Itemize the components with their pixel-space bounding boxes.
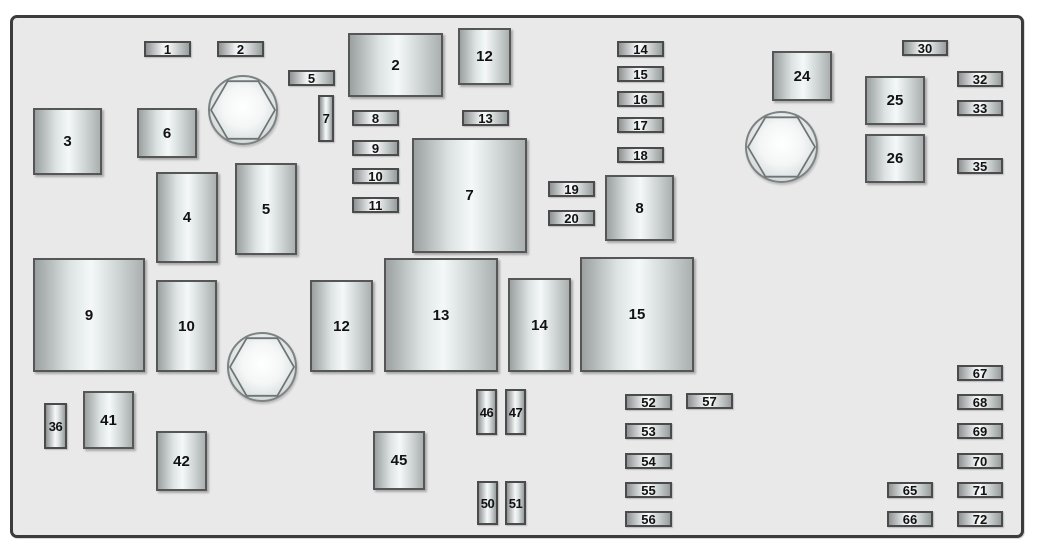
box-8-large: 8 — [605, 175, 674, 241]
fuse-7: 7 — [318, 95, 334, 142]
box-45: 45 — [373, 431, 425, 490]
fuse-68: 68 — [957, 394, 1003, 410]
box-6: 6 — [137, 108, 197, 158]
fuse-20: 20 — [548, 210, 595, 226]
hex-bolt-icon-top-left — [208, 75, 278, 145]
fuse-17: 17 — [617, 117, 664, 133]
box-10: 10 — [156, 280, 217, 372]
relay-24: 24 — [772, 51, 832, 101]
fuse-53: 53 — [625, 423, 672, 439]
fuse-13: 13 — [462, 110, 509, 126]
fuse-70: 70 — [957, 453, 1003, 469]
fuse-66: 66 — [887, 511, 933, 527]
fuse-14: 14 — [617, 41, 664, 57]
fuse-16: 16 — [617, 91, 664, 107]
fuse-19: 19 — [548, 181, 595, 197]
box-5: 5 — [235, 163, 297, 255]
fuse-47: 47 — [505, 389, 526, 435]
box-13-large: 13 — [384, 258, 498, 372]
fuse-8: 8 — [352, 110, 399, 126]
fuse-18: 18 — [617, 147, 664, 163]
hex-bolt-icon-top-right — [745, 111, 818, 183]
fuse-56: 56 — [625, 511, 672, 527]
fuse-54: 54 — [625, 453, 672, 469]
fuse-72: 72 — [957, 511, 1003, 527]
fuse-1: 1 — [144, 41, 191, 57]
fuse-69: 69 — [957, 423, 1003, 439]
relay-2: 2 — [348, 33, 443, 97]
fuse-15: 15 — [617, 66, 664, 82]
fuse-67: 67 — [957, 365, 1003, 381]
fuse-71: 71 — [957, 482, 1003, 498]
fuse-52: 52 — [625, 394, 672, 410]
fuse-11: 11 — [352, 197, 399, 213]
box-12-mid: 12 — [310, 280, 373, 372]
box-3: 3 — [33, 108, 102, 175]
box-15-large: 15 — [580, 257, 694, 372]
diagram-stage: 1221257368139101171415161718192082425263… — [0, 0, 1039, 554]
box-7-large: 7 — [412, 138, 527, 253]
box-42: 42 — [156, 431, 207, 491]
relay-12-top: 12 — [458, 28, 511, 85]
box-14-mid: 14 — [508, 278, 571, 372]
relay-25: 25 — [865, 76, 925, 125]
fuse-46: 46 — [476, 389, 497, 435]
fuse-5: 5 — [288, 70, 335, 86]
fuse-55: 55 — [625, 482, 672, 498]
hex-bolt-icon-bottom — [227, 332, 297, 402]
fuse-32: 32 — [957, 71, 1003, 87]
fuse-65: 65 — [887, 482, 933, 498]
fuse-2: 2 — [217, 41, 264, 57]
relay-26: 26 — [865, 134, 925, 183]
fuse-10: 10 — [352, 168, 399, 184]
fuse-57: 57 — [686, 393, 733, 409]
fuse-50: 50 — [477, 481, 498, 525]
fuse-9: 9 — [352, 140, 399, 156]
fuse-36: 36 — [44, 403, 67, 449]
box-4: 4 — [156, 172, 218, 263]
box-41: 41 — [83, 391, 134, 449]
box-9-large: 9 — [33, 258, 145, 372]
fuse-35: 35 — [957, 158, 1003, 174]
fuse-51: 51 — [505, 481, 526, 525]
fuse-33: 33 — [957, 100, 1003, 116]
fuse-30: 30 — [902, 40, 948, 56]
